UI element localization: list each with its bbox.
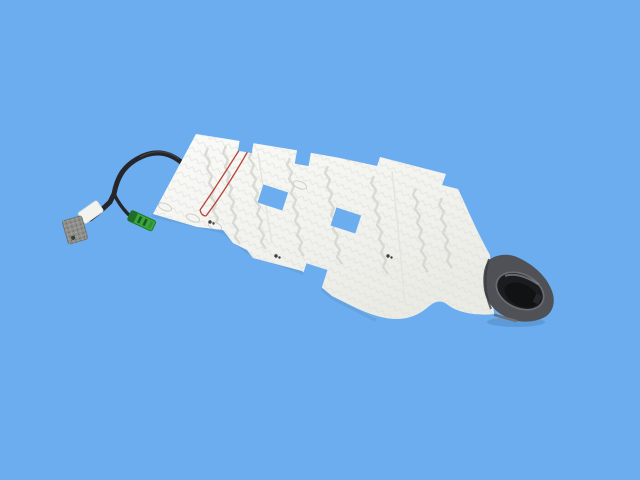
- speck: [212, 222, 214, 224]
- speck: [386, 254, 389, 257]
- speck: [390, 256, 392, 258]
- edge-notch: [238, 138, 254, 153]
- seat-heater-product-photo: [0, 0, 640, 480]
- edge-notch: [295, 149, 311, 166]
- speck: [278, 256, 280, 258]
- speck: [208, 220, 211, 223]
- speck: [274, 254, 277, 257]
- product-photo-canvas: [0, 0, 640, 480]
